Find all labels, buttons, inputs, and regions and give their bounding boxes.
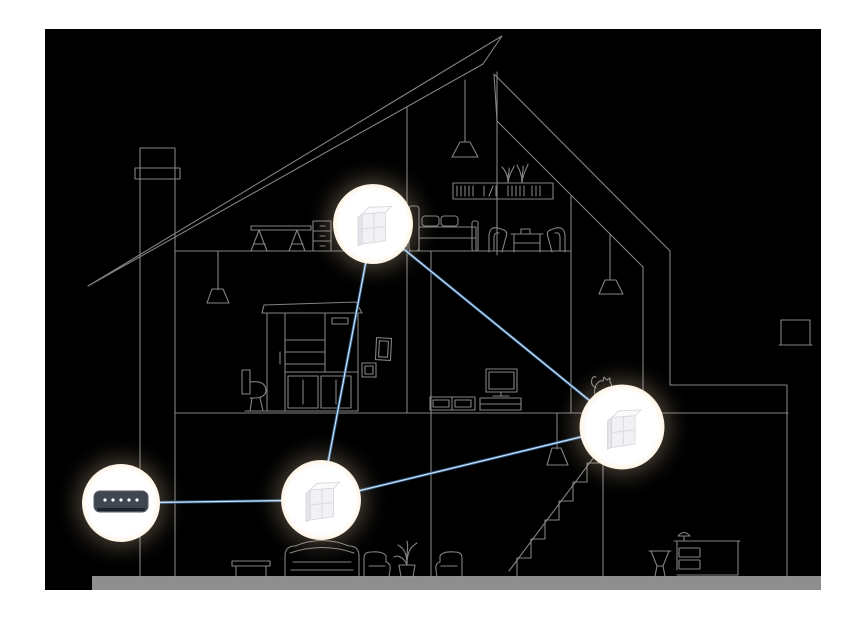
modem-base — [97, 508, 145, 511]
mesh-node-attic-halo — [333, 184, 413, 264]
cube-left-face — [607, 417, 611, 449]
black-canvas — [45, 29, 821, 590]
mesh-cube-device — [301, 476, 341, 524]
cube-left-face — [306, 490, 310, 522]
mesh-network-diagram — [0, 0, 862, 624]
modem-router-halo — [82, 464, 160, 542]
ground-bar — [92, 576, 821, 590]
mesh-cube-device — [602, 403, 642, 451]
mesh-node-ground-floor-halo — [281, 460, 361, 540]
mesh-cube-device — [353, 200, 393, 248]
modem-device — [92, 490, 150, 516]
mesh-node-stairwell-halo — [580, 385, 665, 470]
cube-left-face — [358, 214, 362, 246]
